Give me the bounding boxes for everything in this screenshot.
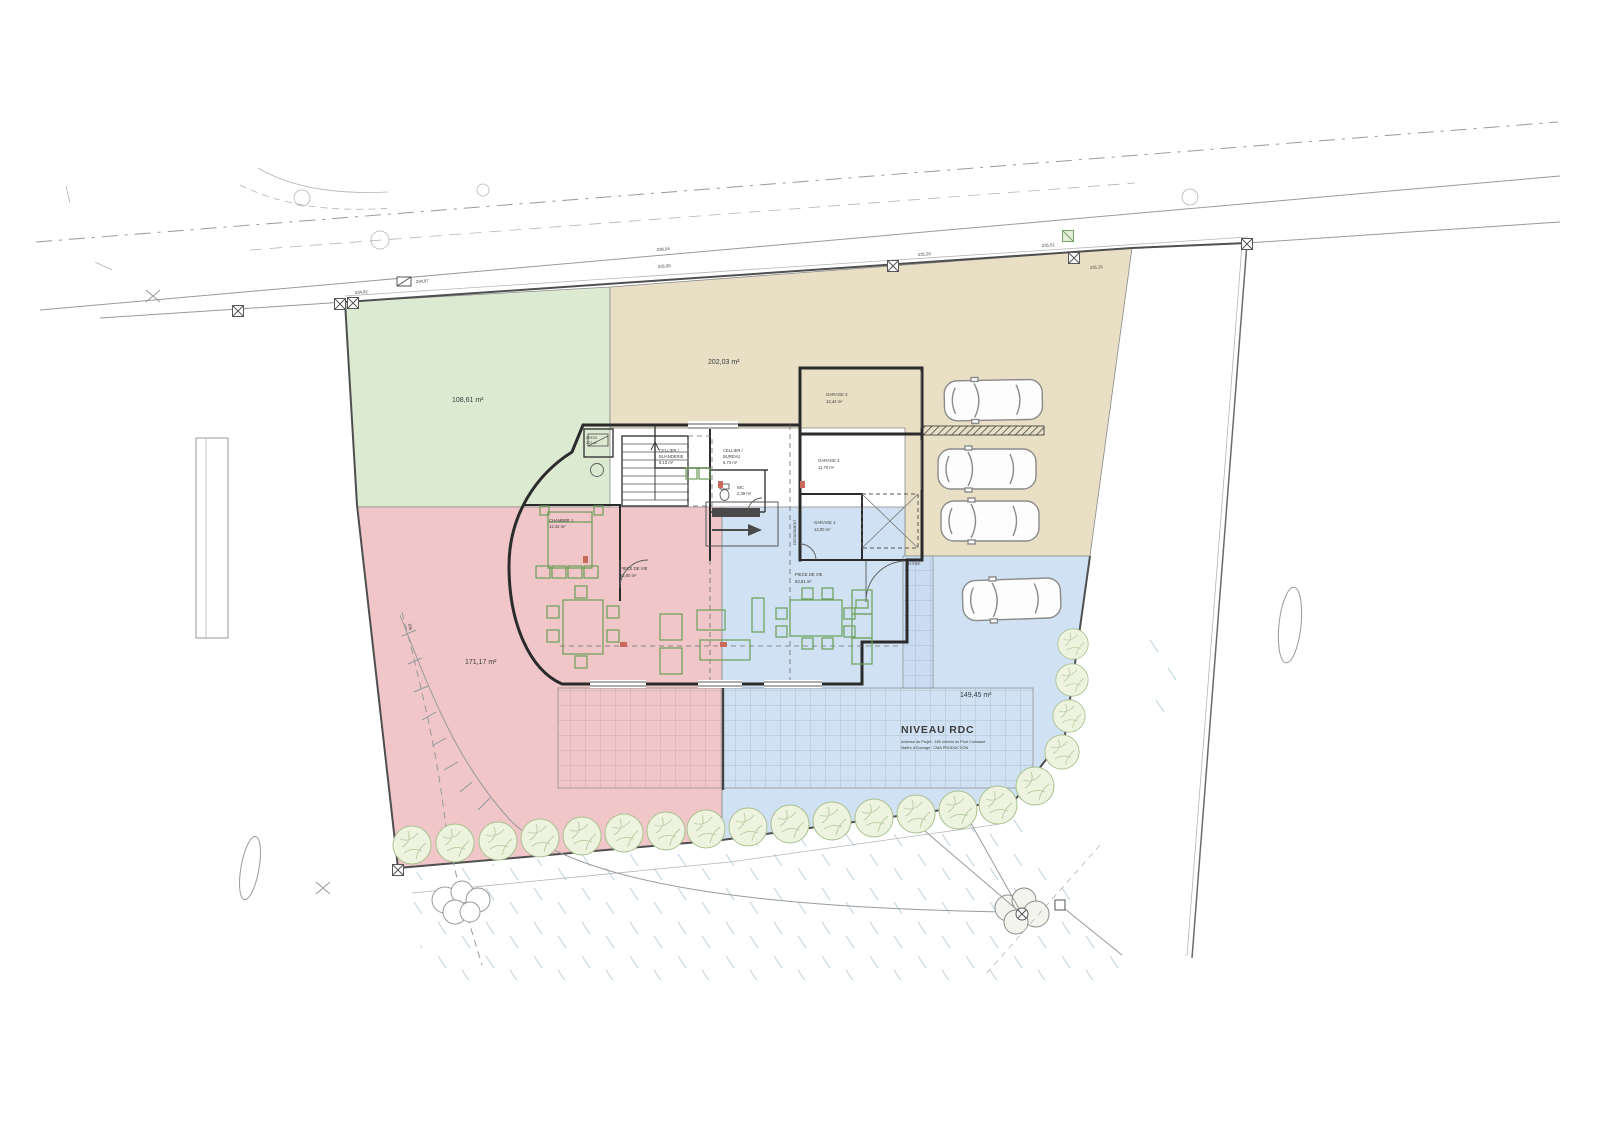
green-zone-area-label: 108,61 m² (452, 397, 484, 404)
room-piece-de-vie-1-name: PIECE DE VIE (620, 566, 648, 571)
elevation-label-5: 235,28 (918, 251, 932, 257)
room-cellier-buanderie-line2: BUANDERIE (659, 454, 684, 459)
cross-marker-bottom (316, 882, 330, 894)
car-middle (938, 446, 1036, 492)
flag-marker (397, 277, 411, 286)
room-garage3-area: 12,44 m² (826, 399, 843, 404)
site-plan-svg: 5% (0, 0, 1600, 1130)
blue-zone-area-label: 149,45 m² (960, 692, 992, 699)
elevation-label-1: 234,92 (355, 289, 369, 295)
room-piece-de-vie-2-name: PIECE DE VIE (795, 572, 823, 577)
room-dressing-area: 2,27 m² (586, 441, 597, 445)
driveway-wall (922, 426, 1044, 435)
floor-plan-canvas: 5% (0, 0, 1600, 1130)
room-wc-area: 2,39 m² (737, 491, 752, 496)
room-cellier-bureau-line1: CELLIER / (723, 448, 744, 453)
car-blue-zone (962, 575, 1062, 624)
plan-owner-line: Maître d'Ouvrage : CMA PRODUCTION (901, 746, 968, 750)
car-bottom (941, 498, 1039, 544)
room-cellier-bureau-area: 5,73 m² (723, 460, 738, 465)
plan-title: NIVEAU RDC (901, 724, 974, 736)
green-survey-marker (1063, 231, 1074, 242)
room-entree-label: ENTREE (906, 562, 921, 566)
room-degagement-label: DEGAGEMENT (793, 519, 797, 545)
red-zone-area-label: 171,17 m² (465, 659, 497, 666)
room-piece-de-vie-1-area: 62,80 m² (620, 573, 637, 578)
room-garage2-name: GARAGE 2 (818, 458, 840, 463)
plan-address-line: Adresse du Projet : 185 chemin du Pont C… (901, 740, 986, 744)
elevation-label-3: 236,04 (657, 246, 671, 252)
room-cellier-buanderie-area: 5,10 m² (659, 460, 674, 465)
room-garage3-name: GARAGE 3 (826, 392, 848, 397)
room-chambre1-name: CHAMBRE 1 (549, 518, 574, 523)
elevation-label-2: 234,87 (416, 278, 430, 284)
room-garage2-area: 11,70 m² (818, 465, 835, 470)
room-piece-de-vie-2-area: 63,81 m² (795, 579, 812, 584)
room-garage1-area: 12,00 m² (814, 527, 831, 532)
car-top (944, 376, 1043, 424)
elevation-label-6: 235,51 (1042, 242, 1056, 248)
terrace-grid-blue (723, 688, 1033, 788)
elevation-label-4: 235,95 (658, 263, 672, 269)
room-dressing-name: DRESS. (586, 436, 598, 440)
room-cellier-bureau-line2: BUREAU (723, 454, 740, 459)
room-garage1-name: GARAGE 1 (814, 520, 836, 525)
terrace-grid-red (558, 688, 723, 788)
room-wc-name: WC (737, 485, 744, 490)
tan-zone-area-label: 202,03 m² (708, 359, 740, 366)
elevation-label-7: 235,15 (1090, 264, 1104, 270)
room-cellier-buanderie-line1: CELLIER / (659, 448, 680, 453)
room-chambre1-area: 12,42 m² (549, 524, 566, 529)
